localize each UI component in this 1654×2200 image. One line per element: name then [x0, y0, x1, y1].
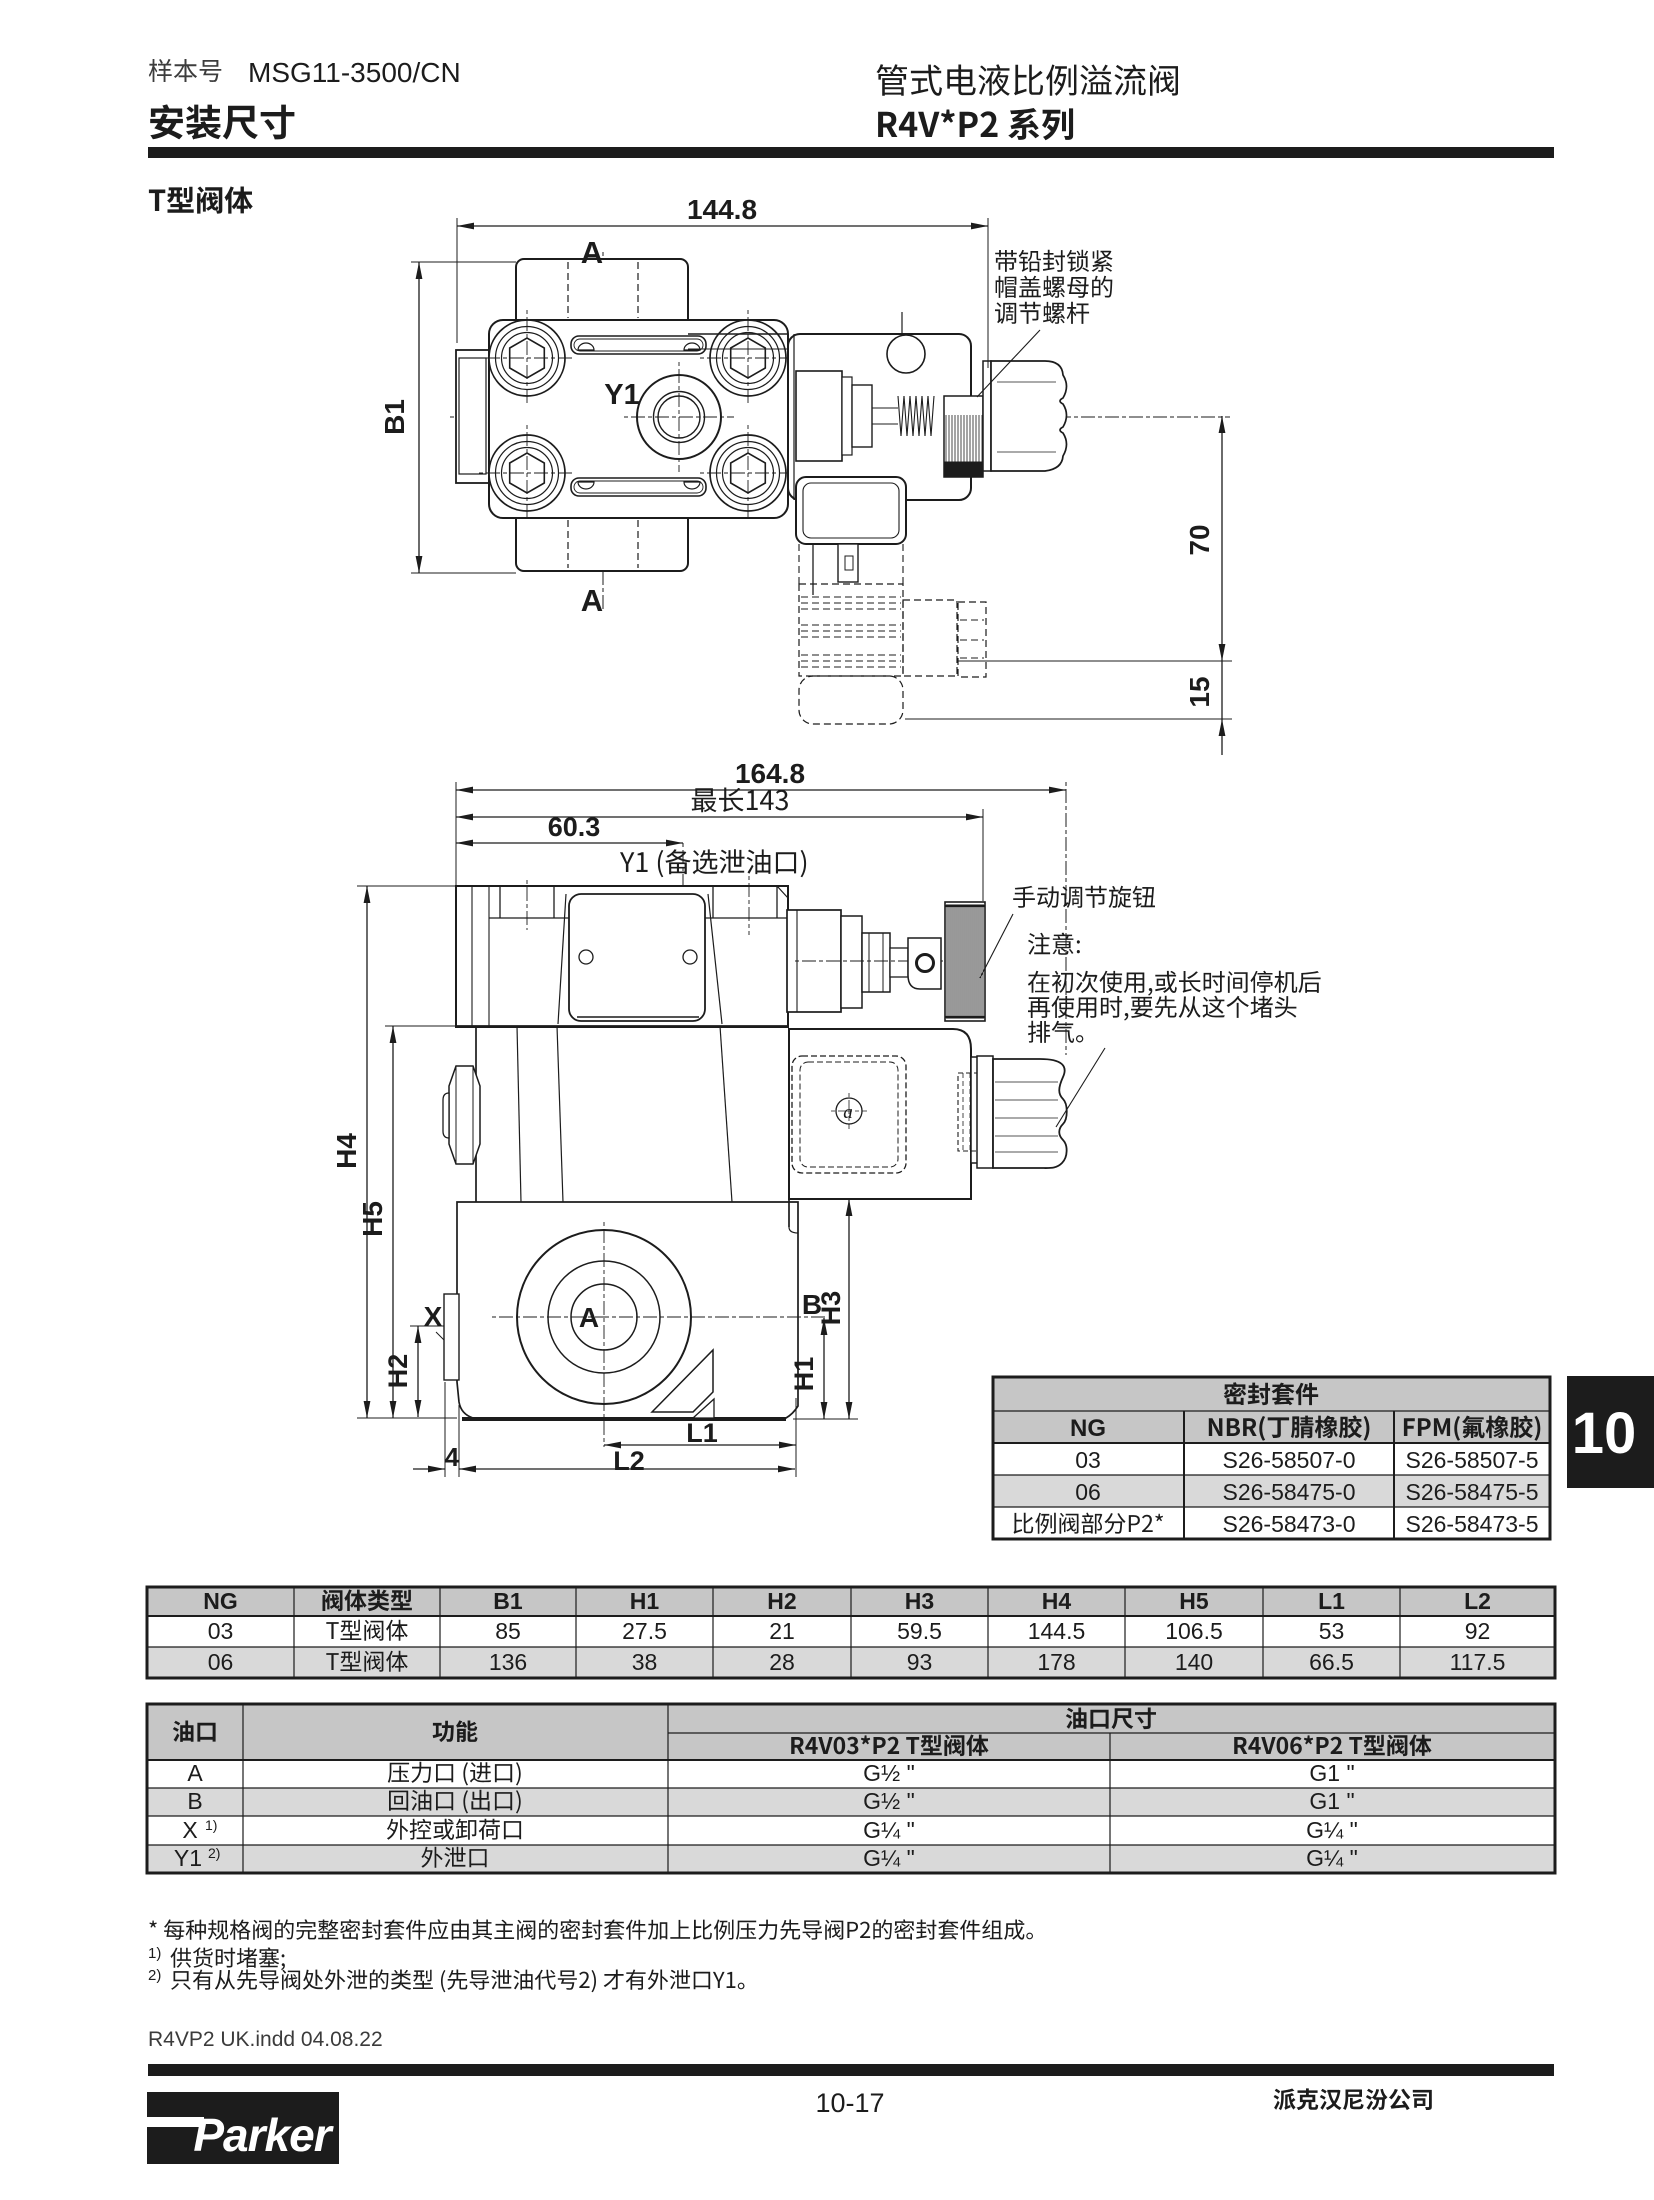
svg-text:Parker: Parker [193, 2109, 333, 2161]
svg-text:85: 85 [495, 1618, 521, 1644]
svg-text:136: 136 [489, 1649, 527, 1675]
svg-text:MSG11-3500/CN: MSG11-3500/CN [248, 57, 461, 88]
svg-text:1): 1) [148, 1945, 161, 1962]
svg-text:28: 28 [769, 1649, 795, 1675]
svg-text:03: 03 [1075, 1447, 1101, 1473]
svg-text:G¼ ": G¼ " [1306, 1817, 1358, 1843]
svg-text:a: a [843, 1102, 853, 1123]
svg-text:H3: H3 [816, 1291, 846, 1326]
svg-text:L2: L2 [1464, 1588, 1491, 1614]
svg-text:H2: H2 [767, 1588, 796, 1614]
svg-text:10-17: 10-17 [815, 2088, 884, 2118]
svg-text:S26-58475-0: S26-58475-0 [1223, 1479, 1356, 1505]
svg-text:38: 38 [632, 1649, 658, 1675]
svg-text:H4: H4 [1042, 1588, 1072, 1614]
svg-text:S26-58475-5: S26-58475-5 [1406, 1479, 1539, 1505]
svg-text:B: B [187, 1788, 202, 1814]
svg-text:S26-58473-0: S26-58473-0 [1223, 1511, 1356, 1537]
svg-text:70: 70 [1184, 524, 1215, 555]
svg-text:B1: B1 [493, 1588, 523, 1614]
svg-text:4: 4 [445, 1442, 460, 1472]
svg-text:NG: NG [203, 1588, 238, 1614]
svg-text:21: 21 [769, 1618, 795, 1644]
svg-text:144.5: 144.5 [1028, 1618, 1086, 1644]
svg-text:H1: H1 [789, 1357, 819, 1392]
svg-text:178: 178 [1037, 1649, 1075, 1675]
svg-text:106.5: 106.5 [1165, 1618, 1223, 1644]
svg-text:B1: B1 [379, 399, 410, 435]
svg-text:G½ ": G½ " [863, 1760, 915, 1786]
svg-text:S26-58507-5: S26-58507-5 [1406, 1447, 1539, 1473]
svg-text:X: X [424, 1301, 443, 1332]
svg-text:A: A [581, 583, 603, 618]
svg-text:06: 06 [1075, 1479, 1101, 1505]
svg-text:G1 ": G1 " [1309, 1788, 1354, 1814]
svg-text:Y1: Y1 [604, 379, 639, 411]
svg-text:92: 92 [1465, 1618, 1491, 1644]
svg-text:L1: L1 [686, 1418, 718, 1448]
svg-text:R4VP2 UK.indd 04.08.22: R4VP2 UK.indd 04.08.22 [148, 2028, 383, 2051]
svg-text:Y1: Y1 [174, 1845, 202, 1871]
svg-text:93: 93 [907, 1649, 933, 1675]
svg-text:140: 140 [1175, 1649, 1213, 1675]
svg-text:G¼ ": G¼ " [863, 1817, 915, 1843]
svg-text:S26-58473-5: S26-58473-5 [1406, 1511, 1539, 1537]
svg-text:G½ ": G½ " [863, 1788, 915, 1814]
svg-text:59.5: 59.5 [897, 1618, 942, 1644]
svg-text:L1: L1 [1318, 1588, 1345, 1614]
svg-text:164.8: 164.8 [735, 758, 805, 789]
svg-text:H5: H5 [357, 1201, 388, 1237]
svg-text:A: A [187, 1760, 203, 1786]
svg-text:L2: L2 [613, 1446, 645, 1476]
svg-text:A: A [581, 235, 603, 270]
svg-text:1): 1) [205, 1817, 217, 1833]
svg-text:A: A [579, 1302, 599, 1333]
svg-text:X: X [182, 1817, 197, 1843]
svg-text:G¼ ": G¼ " [1306, 1845, 1358, 1871]
svg-text:53: 53 [1319, 1618, 1345, 1644]
svg-text:66.5: 66.5 [1309, 1649, 1354, 1675]
svg-text:H2: H2 [383, 1354, 413, 1389]
svg-text:H4: H4 [331, 1133, 362, 1169]
svg-text:G1 ": G1 " [1309, 1760, 1354, 1786]
svg-text:2): 2) [208, 1845, 220, 1861]
svg-text:60.3: 60.3 [548, 812, 601, 842]
svg-text:06: 06 [208, 1649, 234, 1675]
svg-text:15: 15 [1184, 676, 1215, 707]
svg-text:G¼ ": G¼ " [863, 1845, 915, 1871]
svg-text:NG: NG [1070, 1415, 1106, 1442]
svg-text:2): 2) [148, 1967, 161, 1984]
svg-text:117.5: 117.5 [1450, 1649, 1506, 1675]
svg-text:10: 10 [1572, 1401, 1637, 1466]
svg-text:S26-58507-0: S26-58507-0 [1223, 1447, 1356, 1473]
svg-text:H1: H1 [630, 1588, 660, 1614]
svg-text:27.5: 27.5 [622, 1618, 667, 1644]
svg-text:03: 03 [208, 1618, 234, 1644]
svg-text:H3: H3 [905, 1588, 934, 1614]
svg-text:144.8: 144.8 [687, 194, 757, 225]
svg-text:H5: H5 [1179, 1588, 1209, 1614]
